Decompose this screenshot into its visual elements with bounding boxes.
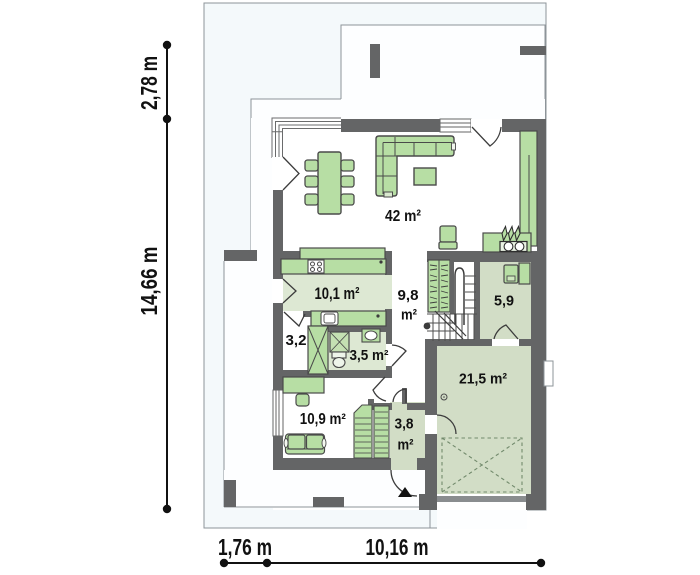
svg-text:14,66 m: 14,66 m bbox=[136, 247, 162, 316]
svg-text:1,76 m: 1,76 m bbox=[218, 534, 272, 560]
svg-text:10,9 m²: 10,9 m² bbox=[300, 411, 346, 428]
svg-text:m²: m² bbox=[401, 307, 417, 324]
svg-text:3,2: 3,2 bbox=[286, 332, 307, 349]
svg-text:5,9: 5,9 bbox=[494, 293, 514, 310]
svg-text:3,8: 3,8 bbox=[395, 416, 414, 433]
svg-text:m²: m² bbox=[398, 437, 414, 454]
svg-text:42 m²: 42 m² bbox=[385, 208, 421, 225]
svg-text:21,5 m²: 21,5 m² bbox=[459, 371, 507, 388]
svg-text:10,16 m: 10,16 m bbox=[366, 534, 429, 560]
svg-text:3,5 m²: 3,5 m² bbox=[350, 348, 389, 364]
svg-text:10,1 m²: 10,1 m² bbox=[315, 285, 360, 303]
svg-text:9,8: 9,8 bbox=[398, 287, 419, 304]
svg-text:2,78 m: 2,78 m bbox=[136, 56, 162, 110]
